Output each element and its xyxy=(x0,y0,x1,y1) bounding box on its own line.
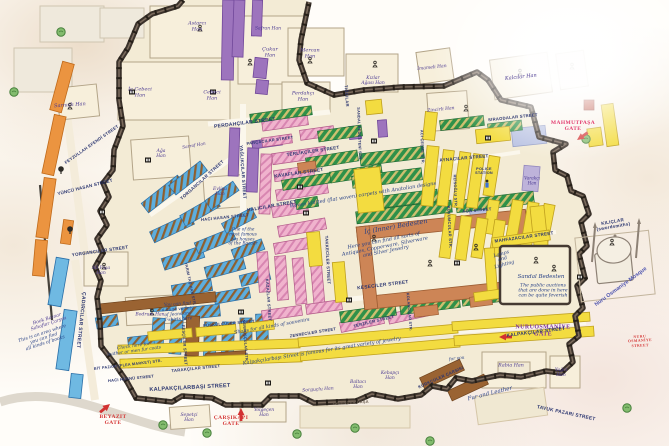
street-label: AĞA STREET xyxy=(462,207,492,214)
han-label: Çukur Han xyxy=(262,47,278,58)
street-label: MAHFAZACILAR STREET xyxy=(494,230,554,243)
street-label: TAKKECİLER STREET xyxy=(323,236,330,285)
street-label: TERZİLER STREET xyxy=(353,315,395,330)
street-label: KALPAKÇILAR STREET xyxy=(506,327,565,340)
han-label: Ağa Han xyxy=(156,149,166,159)
street-label: TAVUK PAZARI STREET xyxy=(536,405,595,423)
annotation: One of the most famous tea houses of the… xyxy=(228,228,257,247)
han-label: Rabia Han xyxy=(498,363,524,368)
street-label: POLICE STATION xyxy=(475,167,493,176)
street-label: FEYZULLAH EFENDİ STREET xyxy=(64,124,120,165)
annotation: This is an area where you can find all k… xyxy=(18,324,70,354)
street-label: YAĞLIKÇILAR STREET xyxy=(239,145,248,199)
han-label: Bodrum Han xyxy=(135,312,164,317)
street-label: YARIM TAŞ HAN STR. xyxy=(183,262,196,306)
street-label: TARAKÇILAR STREET xyxy=(171,364,220,374)
han-label: Astarcı Han xyxy=(188,21,206,32)
street-label: SIRAODALAR STREET xyxy=(488,113,538,123)
han-label: Mercan Han xyxy=(300,48,319,59)
street-label: TIĞCILAR xyxy=(343,85,349,107)
grand-bazaar-map: İç (Inner) Bedesten Here you can find al… xyxy=(0,0,669,446)
han-label: Evliya Han xyxy=(213,187,227,197)
han-label: Sorguçlu Han xyxy=(302,386,334,393)
han-label: Perdahçı Han xyxy=(292,91,314,102)
street-label: KALPAKÇILARBAŞI STREET xyxy=(149,383,230,393)
street-label: ACI ÇEŞME STR. xyxy=(419,130,424,164)
gate-label: MAHMUTPAŞA GATE xyxy=(551,120,595,132)
map-labels: MAHMUTPAŞA GATENURUOSMANİYE GATEBEYAZIT … xyxy=(0,0,669,446)
gate-label: NURUOSMANİYE GATE xyxy=(515,324,570,337)
street-label: KOLANCILAR STR. xyxy=(405,293,413,332)
street-label: KESECİLER STREET xyxy=(357,280,409,292)
han-label: Cebeci Han xyxy=(203,90,220,101)
street-label: YORGANCILAR STREET xyxy=(179,159,225,201)
street-label: HACI HÜSNÜ STREET xyxy=(108,374,154,383)
annotation: You can find a huge variety of Jeans and… xyxy=(161,302,194,324)
han-label: Kalcılar Han xyxy=(505,74,537,83)
annotation: Shops for all kinds of souvenirs xyxy=(234,318,310,337)
gate-label: NURU OSMANİYE STREET xyxy=(625,334,655,348)
han-label: Sepetçi Han xyxy=(180,413,197,423)
gate-label: ÇARŞIKAPI GATE xyxy=(214,415,248,427)
street-label: HACI HASAN STREET xyxy=(201,213,249,223)
street-label: KUYUMCULAR STR. xyxy=(446,206,453,249)
street-label: KÜRKÇÜLER ÇARŞISI xyxy=(418,366,465,390)
street-label: ÇADIRCILAR STREET xyxy=(74,292,85,349)
street-label: KAZAZLAR STREET xyxy=(264,279,271,322)
street-label: ZENNECİLER STREET xyxy=(290,327,337,339)
street-label: KAVAFLAR STREET xyxy=(274,168,324,180)
han-label: Yağcı Han xyxy=(555,368,567,378)
han-label: Sarraf Han xyxy=(182,142,206,151)
street-label: SERPUŞÇULAR STR. xyxy=(241,320,248,363)
han-label: Zincirli Han xyxy=(427,106,455,114)
street-label: YÜNCÜ HASAN STREET xyxy=(57,178,113,197)
street-label: PARÇACILAR STREET xyxy=(246,135,293,146)
han-label: Book Bazaar Sahaflar Çarşısı xyxy=(29,311,68,332)
han-label: Varakçı Han xyxy=(524,176,540,185)
street-label: TERLİKÇİLER STREET xyxy=(286,145,339,157)
han-label: Kızlar Ağası Han xyxy=(361,76,385,86)
street-label: BİT PAZARI (FLEA MARKET) STR. xyxy=(94,359,163,372)
gate-label: BEYAZIT GATE xyxy=(99,414,126,426)
street-label: İSKENDER PAŞA xyxy=(333,400,369,406)
han-label: Ali Paşa Han xyxy=(92,266,110,276)
han-label: Safran Han xyxy=(255,26,281,31)
han-label: Baltacı Han xyxy=(350,380,366,390)
street-label: FESÇİLER STREET xyxy=(180,325,187,366)
han-label: Yolgeçen Han xyxy=(254,408,274,418)
street-label: HALICILAR STREET xyxy=(247,200,297,214)
street-label: REİSOĞLU STR. xyxy=(452,175,457,208)
annotation: for you xyxy=(449,356,465,363)
street-label: PERDAHÇILAR STREET xyxy=(214,117,276,130)
annotation: Lamps and Lighting xyxy=(491,249,515,270)
annotation: Fur and Leather xyxy=(467,385,513,402)
annotation: Check here for leather or men fur coats xyxy=(107,341,162,358)
street-label: PÜSKÜLCÜLER STREET xyxy=(203,320,255,329)
street-label: KILIÇLAR (swordsmiths) xyxy=(585,214,642,234)
street-label: YORGANCILAR STREET xyxy=(71,245,128,258)
han-label: İmameli Han xyxy=(417,64,447,72)
street-label: AYNACILAR STREET xyxy=(439,153,488,162)
han-label: Kebapçı Han xyxy=(381,371,399,381)
han-label: İç Cebeci Han xyxy=(128,87,152,98)
han-label: Sarnıçlı Han xyxy=(54,102,86,110)
street-label: SANDAL BEDESTENİ STR. xyxy=(356,107,362,161)
